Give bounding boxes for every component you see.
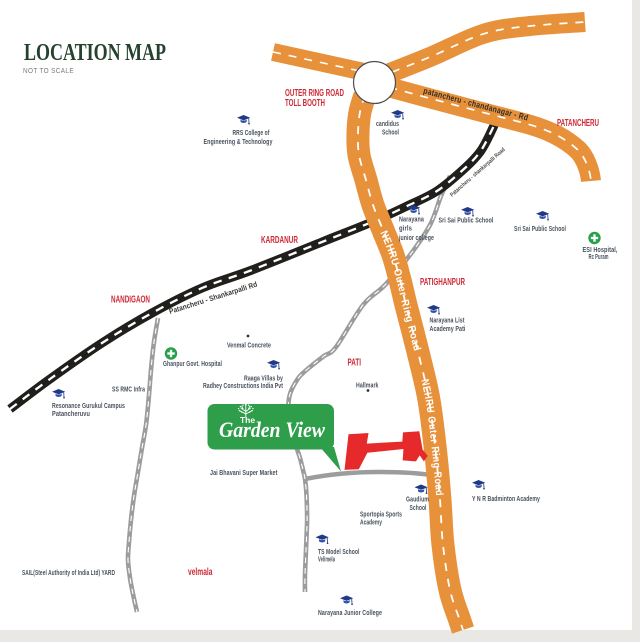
svg-text:NOT TO SCALE: NOT TO SCALE	[23, 66, 74, 75]
svg-text:Narayana Junior College: Narayana Junior College	[318, 610, 382, 617]
svg-text:Patancheruvu: Patancheruvu	[52, 411, 90, 418]
svg-text:Academy: Academy	[360, 520, 382, 527]
svg-text:candidus: candidus	[376, 121, 399, 128]
svg-text:TS Model School: TS Model School	[318, 549, 360, 556]
svg-text:PATIGHANPUR: PATIGHANPUR	[420, 277, 465, 288]
svg-text:Raaga Villas by: Raaga Villas by	[244, 376, 283, 383]
svg-text:Rc Puram: Rc Puram	[589, 254, 609, 261]
svg-text:PATANCHERU: PATANCHERU	[557, 118, 599, 129]
svg-text:Engineering & Technology: Engineering & Technology	[204, 139, 273, 146]
svg-text:Gaudium: Gaudium	[406, 497, 429, 504]
svg-text:SAIL(Steel Authority of India: SAIL(Steel Authority of India Ltd) YARD	[22, 570, 115, 577]
svg-text:Radhey Constructions India Pvt: Radhey Constructions India Pvt	[203, 383, 283, 390]
svg-text:Y N R Badminton Academy: Y N R Badminton Academy	[472, 496, 540, 503]
svg-text:Sri Sai Public School: Sri Sai Public School	[439, 218, 494, 225]
svg-text:Garden View: Garden View	[219, 417, 325, 442]
svg-text:Resonance Gurukul Campus: Resonance Gurukul Campus	[52, 403, 125, 410]
svg-text:TOLL BOOTH: TOLL BOOTH	[285, 98, 325, 109]
svg-text:Venmal Concrete: Venmal Concrete	[227, 343, 271, 350]
svg-text:Sri Sai Public School: Sri Sai Public School	[514, 226, 566, 233]
svg-text:LOCATION MAP: LOCATION MAP	[24, 40, 166, 66]
svg-text:Academy Pati: Academy Pati	[430, 326, 466, 333]
svg-text:Hallmark: Hallmark	[356, 383, 379, 390]
svg-text:Jai Bhavani Super Market: Jai Bhavani Super Market	[210, 470, 278, 477]
svg-text:Velimela: Velimela	[318, 557, 335, 564]
svg-text:RRS College of: RRS College of	[233, 130, 270, 137]
svg-text:NANDIGAON: NANDIGAON	[111, 295, 150, 306]
svg-text:Narayana List: Narayana List	[430, 318, 465, 325]
svg-text:Ghanpur Govt. Hospital: Ghanpur Govt. Hospital	[163, 361, 222, 368]
svg-text:KARDANUR: KARDANUR	[261, 235, 298, 246]
svg-text:girls: girls	[399, 226, 412, 233]
svg-text:Sportopia Sports: Sportopia Sports	[360, 512, 402, 519]
svg-text:School: School	[382, 130, 399, 137]
svg-text:velmala: velmala	[188, 567, 213, 578]
svg-text:PATI: PATI	[348, 357, 362, 368]
svg-text:SS RMC Infra: SS RMC Infra	[112, 387, 145, 394]
svg-text:junior college: junior college	[398, 235, 434, 242]
svg-text:Narayana: Narayana	[399, 217, 424, 224]
svg-text:ESI Hospital,: ESI Hospital,	[583, 247, 618, 254]
svg-text:School: School	[410, 505, 427, 512]
